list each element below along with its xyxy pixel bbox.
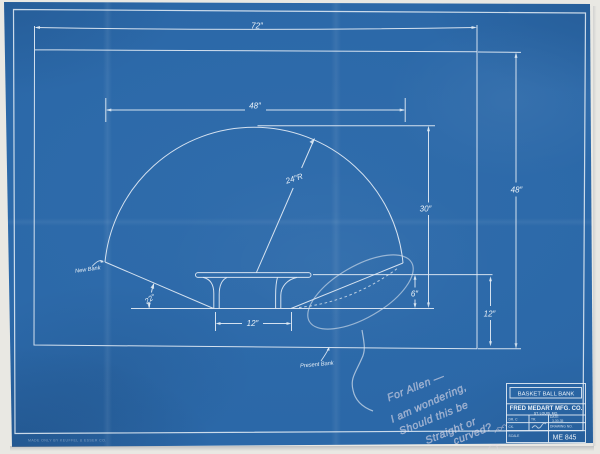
svg-text:48″: 48″ [511,186,524,195]
svg-text:72″: 72″ [251,22,264,31]
svg-text:MADE ONLY BY KEUFFEL & ESSER C: MADE ONLY BY KEUFFEL & ESSER CO. [28,439,107,443]
svg-text:12″: 12″ [247,319,260,328]
svg-text:30″: 30″ [420,205,433,214]
svg-text:12″: 12″ [484,310,497,319]
svg-text:DRAWING NO.: DRAWING NO. [550,425,573,429]
svg-text:CK.: CK. [509,425,515,429]
svg-text:Present Bank: Present Bank [300,360,335,369]
svg-text:48″: 48″ [249,102,262,111]
svg-text:6″: 6″ [411,290,419,299]
svg-text:New Bank: New Bank [75,265,102,275]
svg-text:DR. C: DR. C [509,418,519,422]
svg-text:3-30-35: 3-30-35 [552,419,564,423]
svg-text:SCALE: SCALE [509,434,521,438]
svg-text:TR.: TR. [531,418,536,422]
svg-text:24″R: 24″R [284,172,305,186]
svg-text:BASKET BALL BANK: BASKET BALL BANK [518,392,575,398]
svg-text:22°: 22° [142,292,157,306]
svg-text:ME 845: ME 845 [553,435,577,442]
